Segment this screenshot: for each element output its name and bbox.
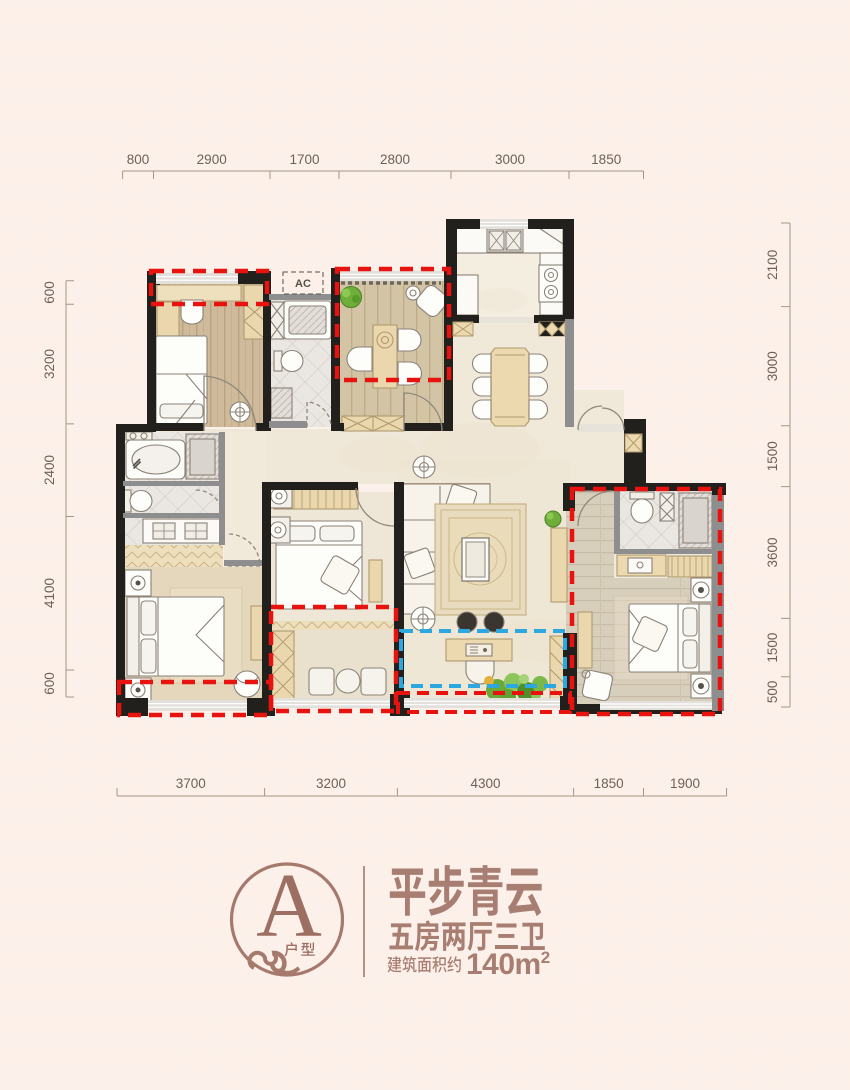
svg-text:600: 600 <box>42 672 57 695</box>
svg-text:1500: 1500 <box>765 633 780 663</box>
svg-text:2900: 2900 <box>197 152 227 167</box>
svg-text:4300: 4300 <box>470 776 500 791</box>
svg-text:2400: 2400 <box>42 455 57 485</box>
svg-text:3000: 3000 <box>765 351 780 381</box>
svg-text:2100: 2100 <box>765 250 780 280</box>
svg-text:3000: 3000 <box>495 152 525 167</box>
svg-text:600: 600 <box>42 281 57 304</box>
svg-text:3600: 3600 <box>765 537 780 567</box>
svg-text:1900: 1900 <box>670 776 700 791</box>
svg-text:3200: 3200 <box>316 776 346 791</box>
svg-text:1500: 1500 <box>765 441 780 471</box>
svg-text:1850: 1850 <box>591 152 621 167</box>
svg-text:4100: 4100 <box>42 578 57 608</box>
svg-text:AC: AC <box>295 278 311 290</box>
svg-text:140m2: 140m2 <box>466 948 550 981</box>
svg-text:1700: 1700 <box>289 152 319 167</box>
svg-text:3700: 3700 <box>176 776 206 791</box>
svg-text:2800: 2800 <box>380 152 410 167</box>
svg-text:1850: 1850 <box>594 776 624 791</box>
svg-text:3200: 3200 <box>42 349 57 379</box>
svg-text:500: 500 <box>765 681 780 704</box>
svg-text:A: A <box>256 855 322 956</box>
svg-text:800: 800 <box>127 152 150 167</box>
